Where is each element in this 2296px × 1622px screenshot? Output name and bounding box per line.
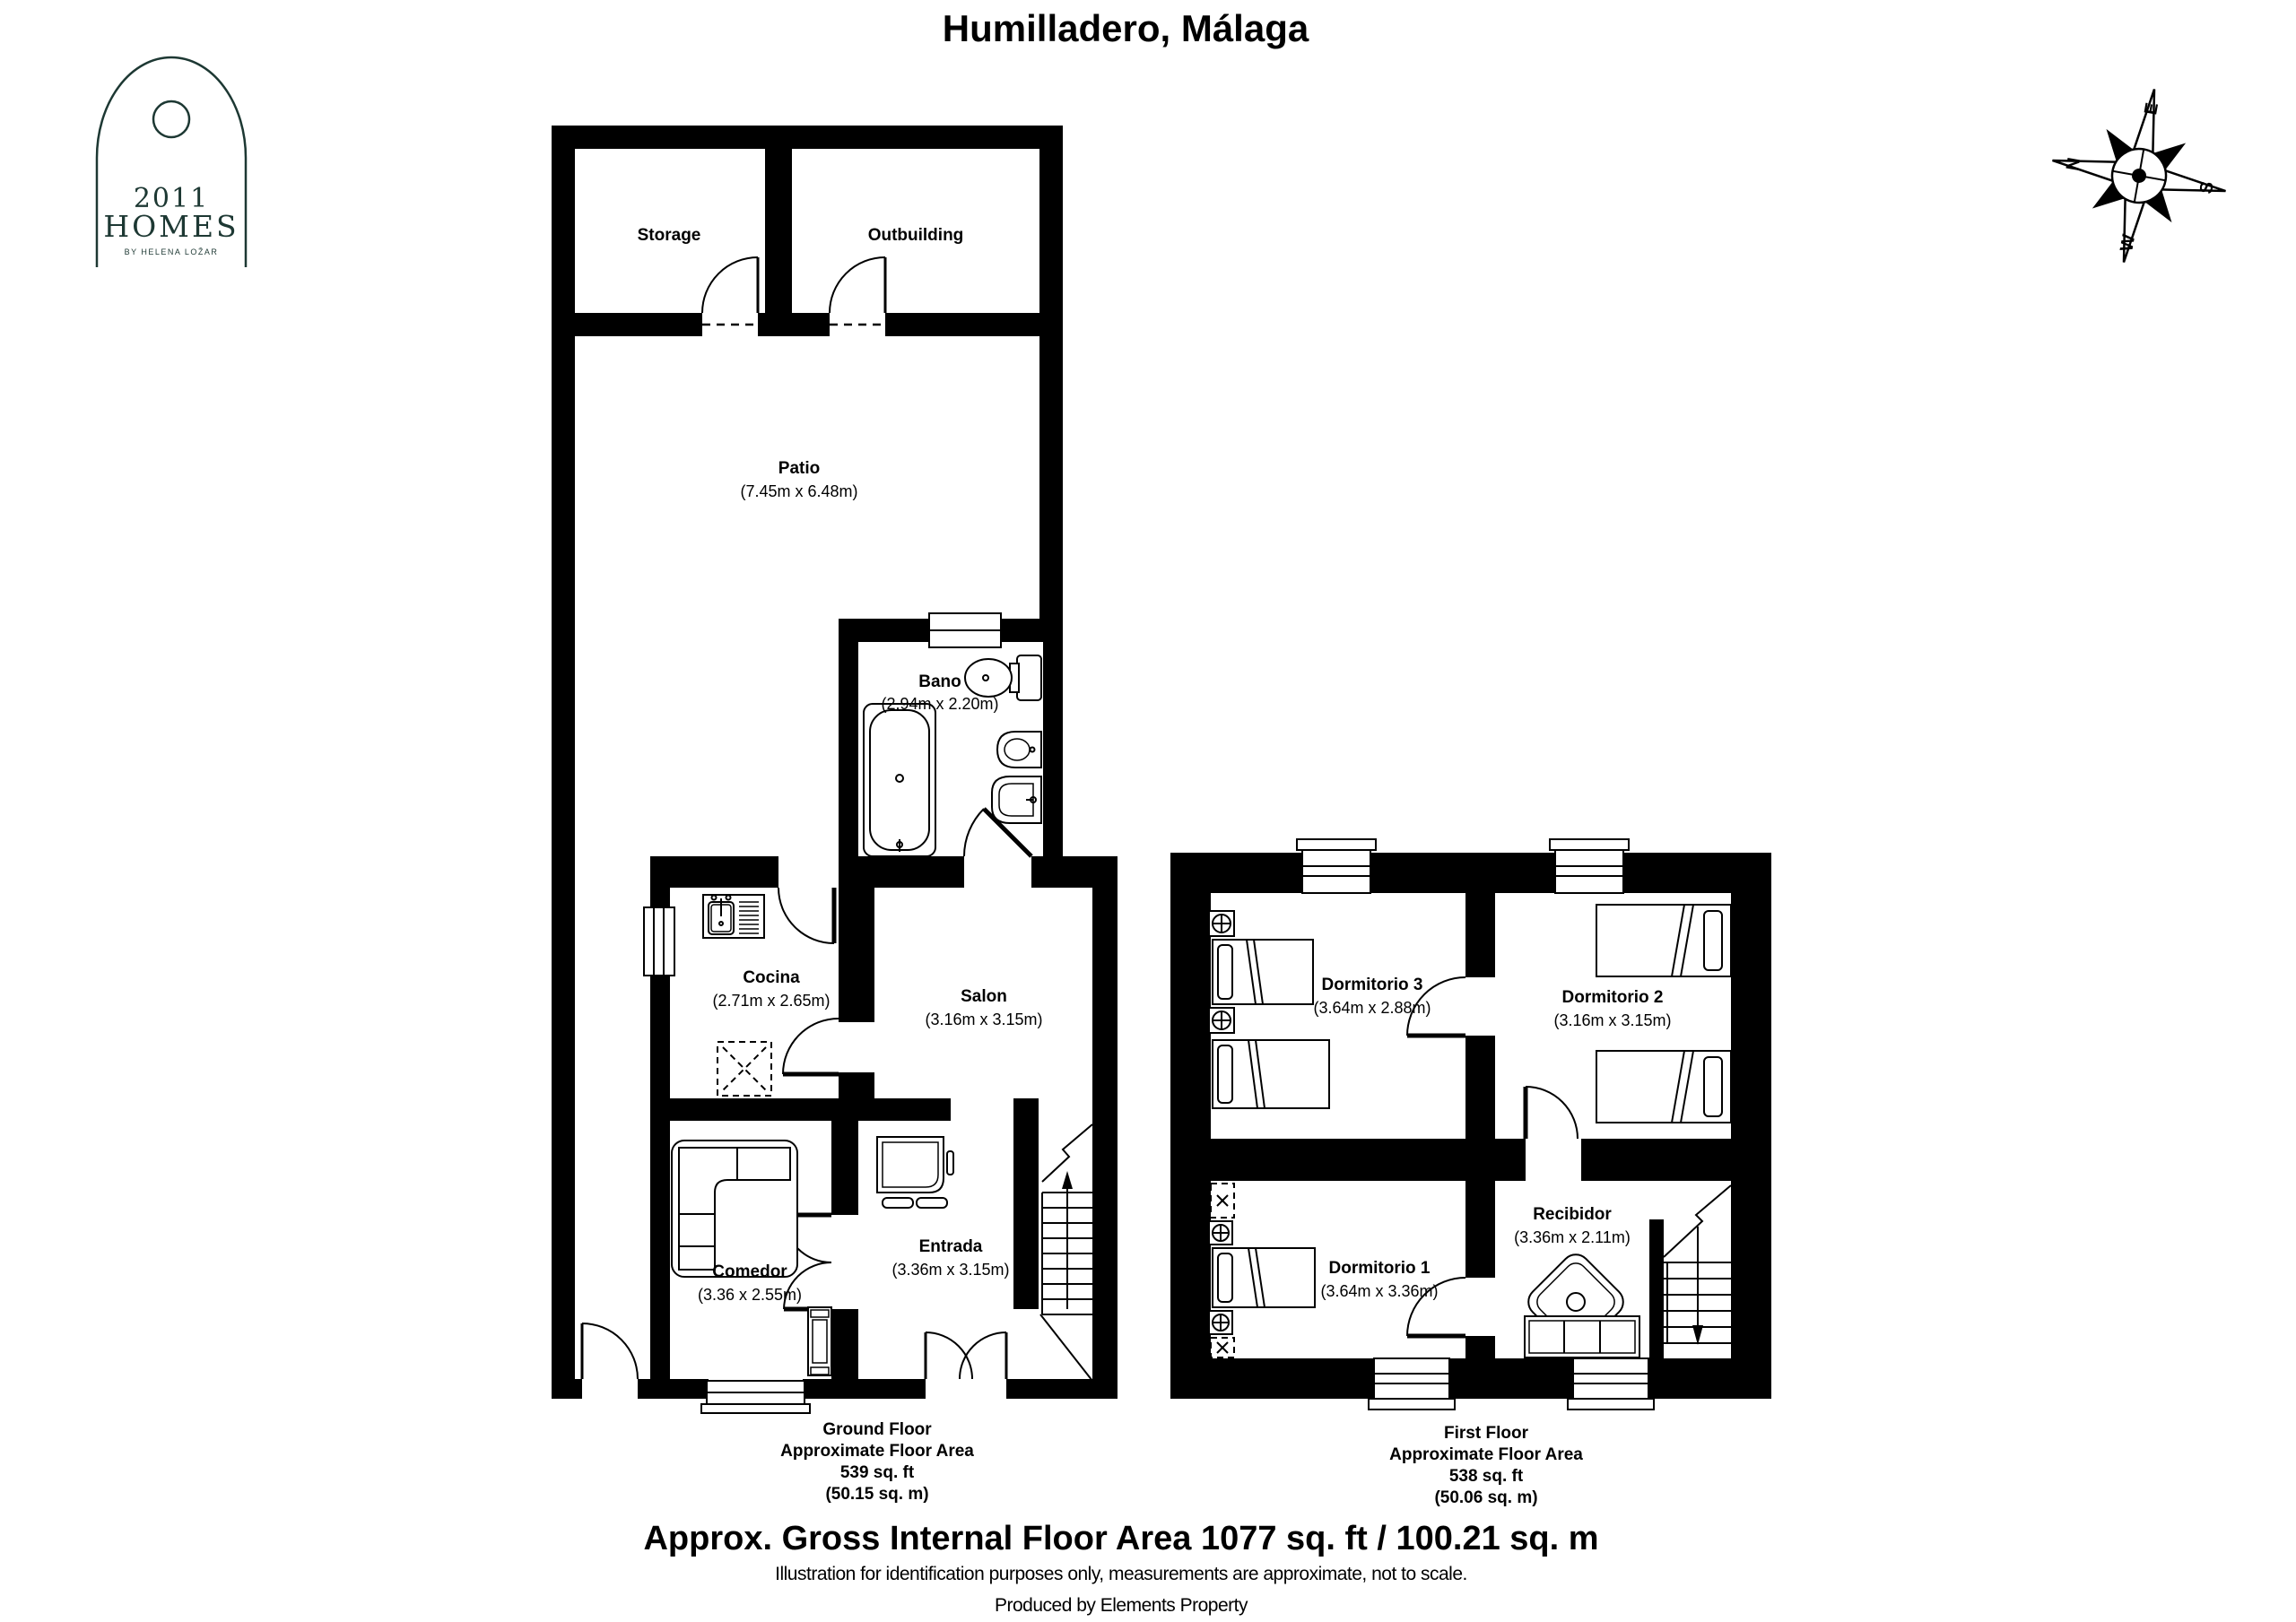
kitchen-sink-unit bbox=[703, 895, 764, 938]
room-label-dormitorio3: Dormitorio 3 bbox=[1322, 976, 1423, 994]
gf-caption-1: Ground Floor bbox=[822, 1420, 932, 1439]
entrada-sofa bbox=[877, 1137, 953, 1208]
dormitorio1-furniture bbox=[1209, 1184, 1315, 1357]
first-floor-caption: First Floor Approximate Floor Area 538 s… bbox=[1389, 1424, 1583, 1507]
logo-byline: BY HELENA LOŽAR bbox=[125, 247, 219, 256]
disclaimer-line: Illustration for identification purposes… bbox=[775, 1564, 1467, 1584]
ff-caption-1: First Floor bbox=[1444, 1424, 1529, 1443]
room-label-storage: Storage bbox=[638, 226, 701, 245]
wardrobe bbox=[1211, 1184, 1234, 1218]
ground-floor-caption: Ground Floor Approximate Floor Area 539 … bbox=[780, 1420, 974, 1504]
bedside-table bbox=[1209, 1008, 1234, 1033]
wardrobe bbox=[1211, 1338, 1234, 1357]
room-dims-dormitorio2: (3.16m x 3.15m) bbox=[1553, 1011, 1671, 1029]
room-label-entrada: Entrada bbox=[919, 1237, 983, 1256]
compass-rose-icon: N E S W bbox=[2037, 74, 2240, 277]
page-title: Humilladero, Málaga bbox=[943, 7, 1309, 49]
compass-s: S bbox=[2196, 180, 2218, 195]
room-label-comedor: Comedor bbox=[712, 1262, 787, 1281]
entrance-door-arc-right bbox=[960, 1332, 1006, 1379]
hob bbox=[717, 1042, 771, 1096]
bedside-table bbox=[1209, 911, 1234, 936]
room-label-dormitorio2: Dormitorio 2 bbox=[1562, 988, 1664, 1007]
dormitorio2-door-arc bbox=[1526, 1087, 1578, 1139]
bedside-table bbox=[1209, 1221, 1232, 1245]
footer: Approx. Gross Internal Floor Area 1077 s… bbox=[643, 1520, 1598, 1616]
room-dims-dormitorio1: (3.64m x 3.36m) bbox=[1320, 1282, 1438, 1300]
room-label-salon: Salon bbox=[961, 987, 1007, 1006]
dormitorio1-window bbox=[1369, 1358, 1455, 1409]
room-label-patio: Patio bbox=[778, 459, 820, 478]
room-label-cocina: Cocina bbox=[743, 968, 800, 987]
logo-circle-icon bbox=[153, 101, 189, 137]
room-dims-bano: (2.94m x 2.20m) bbox=[881, 695, 998, 713]
floorplan-canvas: Humilladero, Málaga 2011 HOMES BY HELENA… bbox=[0, 0, 2296, 1622]
gf-caption-4: (50.15 sq. m) bbox=[825, 1485, 928, 1504]
single-bed bbox=[1213, 940, 1313, 1004]
room-dims-entrada: (3.36m x 3.15m) bbox=[891, 1261, 1009, 1279]
bathroom-sink bbox=[992, 776, 1041, 823]
patio-door-arc bbox=[582, 1323, 638, 1379]
gross-area-line: Approx. Gross Internal Floor Area 1077 s… bbox=[643, 1520, 1598, 1557]
toilet bbox=[965, 655, 1041, 700]
stairs-down bbox=[1664, 1185, 1731, 1345]
entrada-furniture bbox=[877, 1124, 1092, 1381]
single-bed bbox=[1596, 1051, 1731, 1123]
radiator bbox=[808, 1307, 831, 1375]
ff-caption-2: Approximate Floor Area bbox=[1389, 1445, 1583, 1464]
cocina-window bbox=[644, 907, 674, 976]
stairs-up bbox=[1040, 1124, 1092, 1381]
gf-caption-2: Approximate Floor Area bbox=[780, 1442, 974, 1461]
single-bed bbox=[1596, 905, 1731, 976]
bedside-table bbox=[1209, 1311, 1232, 1334]
room-dims-patio: (7.45m x 6.48m) bbox=[740, 482, 857, 500]
logo-name: HOMES bbox=[103, 209, 239, 244]
double-bed bbox=[1213, 1248, 1315, 1307]
ff-caption-4: (50.06 sq. m) bbox=[1434, 1488, 1537, 1507]
produced-by-line: Produced by Elements Property bbox=[995, 1595, 1248, 1616]
room-label-bano: Bano bbox=[918, 672, 961, 691]
stair-down-arrow-icon bbox=[1692, 1325, 1703, 1345]
outbuilding-door-arc bbox=[830, 257, 885, 313]
room-label-recibidor: Recibidor bbox=[1533, 1205, 1612, 1224]
compass-e: E bbox=[2141, 101, 2162, 117]
room-label-dormitorio1: Dormitorio 1 bbox=[1329, 1259, 1431, 1278]
ground-floor-plan: Storage Outbuilding Patio (7.45m x 6.48m… bbox=[552, 126, 1118, 1504]
gf-caption-3: 539 sq. ft bbox=[840, 1463, 915, 1482]
compass-n: N bbox=[2063, 156, 2084, 172]
bano-window bbox=[929, 613, 1001, 647]
bidet bbox=[997, 732, 1041, 768]
stair-up-arrow-icon bbox=[1062, 1171, 1073, 1189]
dormitorio2-window bbox=[1550, 839, 1629, 893]
understair-line bbox=[1040, 1314, 1092, 1381]
storage-door-arc bbox=[702, 257, 758, 313]
ground-floor-doors bbox=[582, 257, 1031, 1379]
single-bed bbox=[1213, 1040, 1329, 1108]
comedor-window bbox=[701, 1381, 810, 1413]
cocina-door-arc bbox=[778, 888, 834, 943]
dormitorio3-furniture bbox=[1209, 911, 1329, 1108]
room-dims-recibidor: (3.36m x 2.11m) bbox=[1514, 1228, 1631, 1246]
bathtub bbox=[864, 704, 935, 856]
ff-caption-3: 538 sq. ft bbox=[1449, 1467, 1524, 1486]
dresser bbox=[1525, 1316, 1639, 1357]
comedor-furniture bbox=[672, 1141, 831, 1375]
room-dims-dormitorio3: (3.64m x 2.88m) bbox=[1313, 999, 1431, 1017]
room-dims-cocina: (2.71m x 2.65m) bbox=[712, 992, 830, 1010]
recibidor-window bbox=[1568, 1358, 1654, 1409]
bano-door-arc bbox=[964, 809, 984, 856]
room-dims-comedor: (3.36 x 2.55m) bbox=[698, 1286, 802, 1304]
room-label-outbuilding: Outbuilding bbox=[868, 226, 964, 245]
first-floor-plan: Dormitorio 3 (3.64m x 2.88m) Dormitorio … bbox=[1170, 839, 1771, 1507]
agency-logo: 2011 HOMES BY HELENA LOŽAR bbox=[97, 57, 246, 267]
cocina-salon-door-arc bbox=[783, 1019, 839, 1074]
room-dims-salon: (3.16m x 3.15m) bbox=[925, 1010, 1042, 1028]
floorplan-page: Humilladero, Málaga 2011 HOMES BY HELENA… bbox=[0, 0, 2296, 1622]
corner-sofa bbox=[672, 1141, 797, 1277]
dormitorio3-window bbox=[1297, 839, 1376, 893]
compass-w: W bbox=[2117, 233, 2139, 254]
